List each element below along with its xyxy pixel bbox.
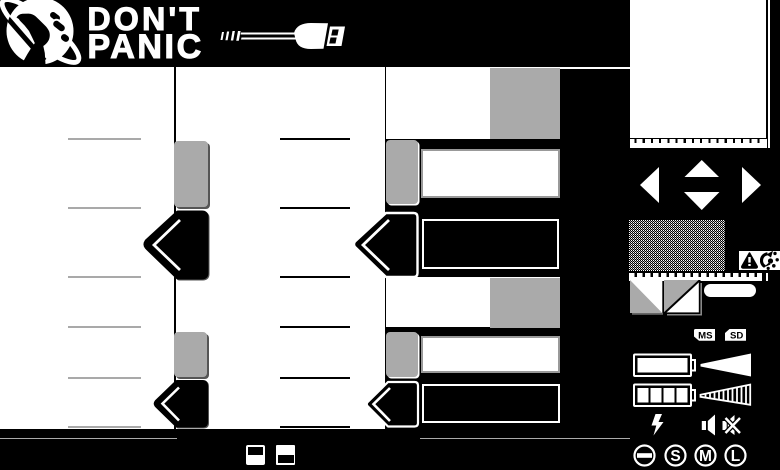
svg-text:SD: SD — [730, 331, 743, 341]
svg-text:L: L — [730, 448, 739, 465]
svg-text:MS: MS — [698, 331, 713, 341]
svg-text:S: S — [670, 448, 680, 465]
svg-text:M: M — [699, 448, 712, 465]
